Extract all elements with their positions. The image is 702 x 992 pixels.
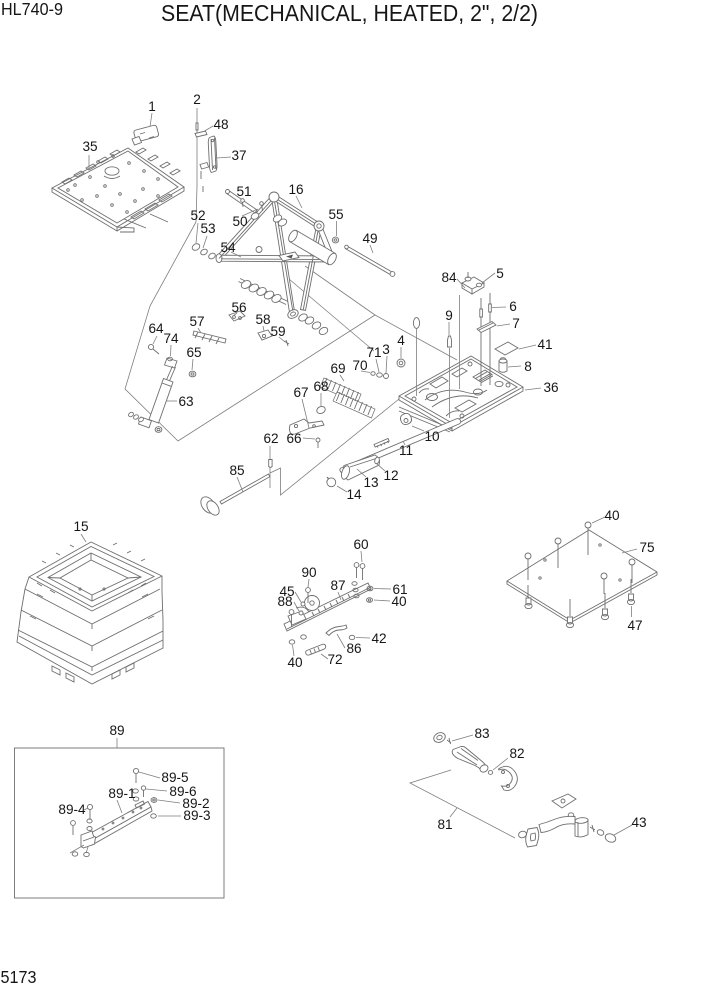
svg-text:81: 81 xyxy=(437,817,452,832)
svg-text:36: 36 xyxy=(543,380,558,395)
svg-text:9: 9 xyxy=(445,308,453,323)
svg-text:69: 69 xyxy=(330,361,345,376)
svg-text:64: 64 xyxy=(148,321,164,336)
svg-text:8: 8 xyxy=(524,359,532,374)
svg-text:66: 66 xyxy=(286,431,301,446)
svg-text:68: 68 xyxy=(313,379,328,394)
svg-text:2: 2 xyxy=(193,92,201,107)
svg-text:58: 58 xyxy=(255,312,270,327)
svg-text:14: 14 xyxy=(346,487,362,502)
svg-text:86: 86 xyxy=(346,641,361,656)
svg-text:62: 62 xyxy=(263,431,278,446)
svg-text:1: 1 xyxy=(148,99,156,114)
svg-text:51: 51 xyxy=(236,184,251,199)
svg-text:40: 40 xyxy=(604,508,620,523)
svg-text:5173: 5173 xyxy=(1,967,37,987)
svg-text:41: 41 xyxy=(537,337,552,352)
svg-text:47: 47 xyxy=(627,618,642,633)
svg-text:82: 82 xyxy=(509,746,524,761)
svg-text:87: 87 xyxy=(330,578,345,593)
svg-text:40: 40 xyxy=(391,594,407,609)
svg-text:5: 5 xyxy=(496,266,504,281)
svg-text:89-5: 89-5 xyxy=(161,770,188,785)
svg-text:84: 84 xyxy=(441,270,457,285)
svg-text:63: 63 xyxy=(178,394,193,409)
svg-text:13: 13 xyxy=(363,475,378,490)
svg-text:72: 72 xyxy=(327,652,342,667)
svg-text:60: 60 xyxy=(353,537,369,552)
svg-text:49: 49 xyxy=(362,231,377,246)
svg-text:12: 12 xyxy=(383,468,398,483)
svg-text:55: 55 xyxy=(328,207,343,222)
svg-text:89-4: 89-4 xyxy=(58,802,86,817)
svg-text:75: 75 xyxy=(639,540,654,555)
svg-text:57: 57 xyxy=(189,314,204,329)
svg-text:11: 11 xyxy=(399,443,413,458)
svg-text:89-1: 89-1 xyxy=(108,786,135,801)
svg-text:37: 37 xyxy=(231,148,246,163)
svg-text:15: 15 xyxy=(73,519,88,534)
svg-text:10: 10 xyxy=(424,429,440,444)
svg-text:4: 4 xyxy=(397,333,405,348)
svg-text:43: 43 xyxy=(631,815,646,830)
svg-text:54: 54 xyxy=(220,240,236,255)
svg-text:40: 40 xyxy=(287,655,303,670)
svg-text:16: 16 xyxy=(288,182,303,197)
svg-text:59: 59 xyxy=(270,324,285,339)
svg-text:56: 56 xyxy=(231,300,246,315)
svg-text:89: 89 xyxy=(109,723,124,738)
svg-text:83: 83 xyxy=(474,726,489,741)
svg-text:HL740-9: HL740-9 xyxy=(1,0,63,19)
svg-text:50: 50 xyxy=(232,214,248,229)
svg-text:85: 85 xyxy=(229,463,244,478)
svg-text:53: 53 xyxy=(200,221,215,236)
svg-text:65: 65 xyxy=(186,345,201,360)
svg-text:90: 90 xyxy=(301,565,317,580)
svg-text:6: 6 xyxy=(509,299,517,314)
svg-text:74: 74 xyxy=(163,331,179,346)
svg-text:70: 70 xyxy=(352,358,368,373)
svg-text:3: 3 xyxy=(382,342,390,357)
svg-text:7: 7 xyxy=(512,316,520,331)
svg-text:42: 42 xyxy=(371,631,386,646)
svg-text:88: 88 xyxy=(277,594,292,609)
svg-text:67: 67 xyxy=(293,385,308,400)
svg-text:48: 48 xyxy=(213,117,228,132)
svg-text:SEAT(MECHANICAL, HEATED, 2", 2: SEAT(MECHANICAL, HEATED, 2", 2/2) xyxy=(161,0,538,26)
svg-text:71: 71 xyxy=(366,345,381,360)
svg-text:35: 35 xyxy=(82,139,97,154)
svg-text:89-3: 89-3 xyxy=(183,808,210,823)
